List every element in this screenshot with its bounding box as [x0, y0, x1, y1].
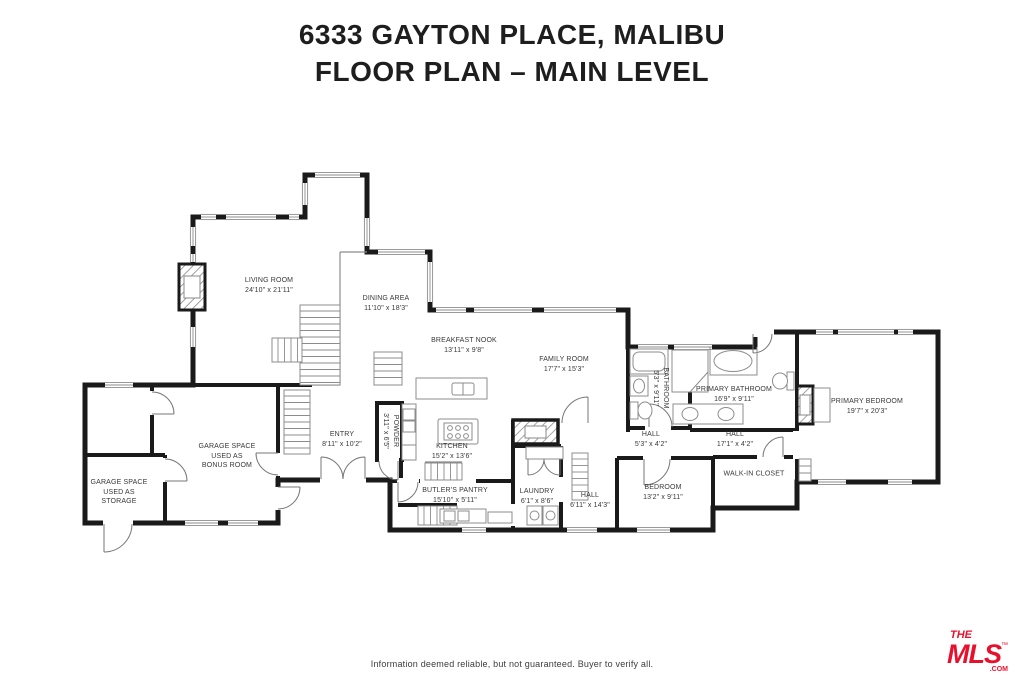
- room-label-breakfast-nook: BREAKFAST NOOK 13'11" x 9'8": [431, 327, 497, 365]
- room-label-primary-bathroom: PRIMARY BATHROOM 16'9" x 9'11": [696, 376, 772, 414]
- room-label-powder: POWDER 3'11" x 6'5": [371, 413, 409, 449]
- mls-logo-mls: MLS: [947, 641, 1001, 668]
- room-label-primary-bedroom: PRIMARY BEDROOM 19'7" x 20'3": [831, 388, 903, 426]
- living-room-fireplace-icon: [179, 264, 205, 310]
- room-label-hall: HALL 6'11" x 14'3": [570, 482, 610, 520]
- disclaimer-text: Information deemed reliable, but not gua…: [0, 659, 1024, 669]
- floor-plan-page: 6333 GAYTON PLACE, MALIBU FLOOR PLAN – M…: [0, 0, 1024, 683]
- primary-bedroom-fireplace-icon: [797, 386, 830, 424]
- room-label-family-room: FAMILY ROOM 17'7" x 15'3": [539, 346, 589, 384]
- mls-logo-tm: ™: [1001, 642, 1008, 649]
- primary-toilet-icon: [773, 372, 795, 390]
- room-label-bathroom: BATHROOM 5'3" x 9'11": [641, 367, 679, 408]
- room-label-living-room: LIVING ROOM 24'10" x 21'11": [245, 267, 293, 305]
- room-label-kitchen: KITCHEN 15'2" x 13'6": [432, 433, 472, 471]
- room-label-garage-bonus: GARAGE SPACE USED AS BONUS ROOM: [199, 433, 256, 471]
- room-label-walk-in-closet: WALK-IN CLOSET: [724, 461, 785, 480]
- room-label-garage-storage: GARAGE SPACE USED AS STORAGE: [91, 469, 148, 507]
- room-label-dining-area: DINING AREA 11'10" x 18'3": [363, 285, 410, 323]
- room-label-bedroom: BEDROOM 13'2" x 9'11": [643, 474, 683, 512]
- mls-logo: THE MLS ™ .COM: [947, 630, 1008, 673]
- primary-bedroom-shelves: [799, 459, 811, 481]
- room-label-laundry: LAUNDRY 6'1" x 8'6": [520, 478, 554, 516]
- laundry-closet: [526, 447, 563, 459]
- floor-plan-drawing: [0, 0, 1024, 683]
- room-label-hall-primary: HALL 17'1" x 4'2": [717, 421, 753, 459]
- primary-tub-icon: [710, 347, 757, 375]
- room-label-hall-small: HALL 5'3" x 4'2": [635, 421, 667, 459]
- room-label-butlers-pantry: BUTLER'S PANTRY 15'10" x 5'11": [422, 477, 488, 515]
- family-room-fireplace-icon: [513, 420, 558, 444]
- room-label-entry: ENTRY 8'11" x 10'2": [322, 421, 362, 459]
